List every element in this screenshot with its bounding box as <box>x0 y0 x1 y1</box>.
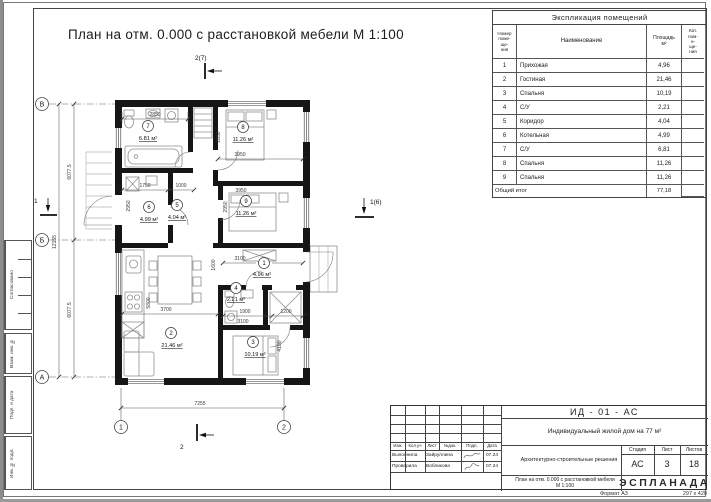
svg-text:6077.5: 6077.5 <box>67 302 73 318</box>
row-name: Коридор <box>517 115 647 129</box>
row-num: 5 <box>493 115 517 129</box>
svg-text:11.26 м²: 11.26 м² <box>236 211 257 217</box>
svg-text:3950: 3950 <box>234 152 245 158</box>
format-label: Формат А3 <box>600 491 628 497</box>
row-category <box>682 115 704 129</box>
svg-text:1900: 1900 <box>239 309 250 315</box>
sheets-value: 18 <box>680 454 708 475</box>
margin-field-podp-data: Подп. и дата <box>4 376 32 434</box>
title-block: Изм. Кол.уч Лист №док. Подп. Дата Выполн… <box>390 405 707 490</box>
svg-text:А: А <box>40 375 45 382</box>
svg-text:21.46 м²: 21.46 м² <box>161 343 182 349</box>
svg-text:10.19 м²: 10.19 м² <box>244 352 265 358</box>
row-num: 2 <box>493 73 517 87</box>
row-name: Прихожая <box>517 59 647 73</box>
row-area: 21,46 <box>647 73 682 87</box>
schedule-table: Номер поме- ще- ния Наименование Площадь… <box>492 24 707 198</box>
checker-signature <box>461 461 483 472</box>
row-name: С/У <box>517 101 647 115</box>
row-area: 10,19 <box>647 87 682 101</box>
svg-text:2: 2 <box>282 425 286 432</box>
document-code: ИД - 01 - АС <box>501 406 708 418</box>
room-schedule: Экспликация помещений Номер поме- ще- ни… <box>492 10 707 198</box>
svg-text:1000: 1000 <box>175 183 186 189</box>
author-name: Зайруллина <box>426 450 461 461</box>
row-name: Котельная <box>517 129 647 143</box>
company-logo: ЭСПЛАНАДА <box>621 475 708 491</box>
margin-field-inv-podl: Инв. № подл. <box>4 436 32 490</box>
svg-text:4.04 м²: 4.04 м² <box>168 215 186 221</box>
svg-text:3950: 3950 <box>235 188 246 194</box>
row-name: Гостиная <box>517 73 647 87</box>
row-category <box>682 143 704 157</box>
svg-text:1600: 1600 <box>211 259 217 270</box>
svg-text:4.99 м²: 4.99 м² <box>140 217 158 223</box>
dimensions: 2850 2850 3950 3950 2950 2950 1750 1000 … <box>49 102 305 412</box>
row-name: Спальня <box>517 157 647 171</box>
row-name: Спальня <box>517 87 647 101</box>
section-name: Архитектурно-строительные решения <box>501 445 637 475</box>
col-list: Лист <box>425 442 439 450</box>
col-podp: Подп. <box>461 442 483 450</box>
col-dok: №док. <box>439 442 461 450</box>
row-category <box>682 171 704 185</box>
row-num: 3 <box>493 87 517 101</box>
svg-text:Б: Б <box>40 238 45 245</box>
svg-text:12155: 12155 <box>52 235 58 249</box>
svg-text:4100: 4100 <box>277 340 283 351</box>
svg-text:5800: 5800 <box>146 297 152 308</box>
col-header-area: Площадь м² <box>647 25 682 59</box>
row-area: 6,81 <box>647 143 682 157</box>
col-header-number: Номер поме- ще- ния <box>493 25 517 59</box>
row-num: 9 <box>493 171 517 185</box>
stage-label: Стадия <box>621 445 654 454</box>
drawing-sheet: План на отм. 0.000 с расстановкой мебели… <box>0 0 711 502</box>
row-area: 4,99 <box>647 129 682 143</box>
row-area: 11,26 <box>647 157 682 171</box>
schedule-title: Экспликация помещений <box>492 10 707 25</box>
row-num: 1 <box>493 59 517 73</box>
row-category <box>682 101 704 115</box>
svg-text:1: 1 <box>34 198 38 205</box>
col-izm: Изм. <box>391 442 405 450</box>
margin-field-vzam-inv: Взам. инв. № <box>4 333 32 374</box>
row-category <box>682 73 704 87</box>
svg-text:6077.5: 6077.5 <box>67 164 73 180</box>
row-num: 7 <box>493 143 517 157</box>
row-area: 4,96 <box>647 59 682 73</box>
svg-text:3100: 3100 <box>237 319 248 325</box>
svg-text:1(6): 1(6) <box>370 199 382 206</box>
row-area: 11,26 <box>647 171 682 185</box>
svg-text:1200: 1200 <box>280 309 291 315</box>
checker-role: Проверила <box>392 461 425 472</box>
row-category <box>682 129 704 143</box>
svg-text:7255: 7255 <box>194 401 205 407</box>
sheet-value: 3 <box>654 454 680 475</box>
col-koluch: Кол.уч <box>405 442 425 450</box>
row-category <box>682 157 704 171</box>
svg-text:2850: 2850 <box>216 131 222 142</box>
svg-text:2(7): 2(7) <box>195 55 207 62</box>
col-data: Дата <box>483 442 501 450</box>
margin-field-soglasovano: Согласовано <box>4 240 32 330</box>
total-value: 77,18 <box>647 185 682 197</box>
row-name: Спальня <box>517 171 647 185</box>
svg-text:1: 1 <box>119 425 123 432</box>
row-area: 4,04 <box>647 115 682 129</box>
row-num: 6 <box>493 129 517 143</box>
row-num: 8 <box>493 157 517 171</box>
sheets-label: Листов <box>680 445 708 454</box>
terrace-left <box>86 152 112 229</box>
svg-text:4.96 м²: 4.96 м² <box>253 272 271 278</box>
total-label: Общий итог <box>493 185 647 197</box>
svg-text:1750: 1750 <box>139 183 150 189</box>
author-role: Выполнила <box>392 450 425 461</box>
total-category <box>682 185 704 197</box>
row-category <box>682 87 704 101</box>
svg-text:2: 2 <box>180 444 184 451</box>
format-size: 297 х 420 <box>683 491 707 497</box>
col-header-category: Кат. пом- е- ще- ния <box>682 25 704 59</box>
row-name: С/У <box>517 143 647 157</box>
svg-text:11.26 м²: 11.26 м² <box>233 137 254 143</box>
col-header-name: Наименование <box>517 25 647 59</box>
object-name: Индивидуальный жилой дом на 77 м² <box>501 418 708 445</box>
furniture <box>122 108 301 376</box>
svg-text:3100: 3100 <box>234 256 245 262</box>
format-note: Формат А3 297 х 420 <box>600 491 707 497</box>
svg-text:2950: 2950 <box>223 201 229 212</box>
svg-text:В: В <box>40 102 45 109</box>
author-date: 07.24 <box>483 450 501 461</box>
row-area: 2,21 <box>647 101 682 115</box>
row-num: 4 <box>493 101 517 115</box>
checker-name: Вобликова <box>426 461 461 472</box>
room-labels: 7 6.81 м² 8 11.26 м² 9 11.26 м² 6 4.99 м… <box>139 121 271 359</box>
svg-text:6.81 м²: 6.81 м² <box>139 136 157 142</box>
svg-text:2.21 м²: 2.21 м² <box>227 297 245 303</box>
sheet-label: Лист <box>654 445 680 454</box>
author-signature <box>461 450 483 461</box>
svg-text:2850: 2850 <box>149 112 160 118</box>
checker-date: 07.24 <box>483 461 501 472</box>
svg-text:2950: 2950 <box>126 200 132 211</box>
svg-text:3700: 3700 <box>160 307 171 313</box>
sheet-title-cell: План на отм. 0.000 с расстановкой мебели… <box>501 475 629 491</box>
row-category <box>682 59 704 73</box>
stage-value: АС <box>621 454 654 475</box>
